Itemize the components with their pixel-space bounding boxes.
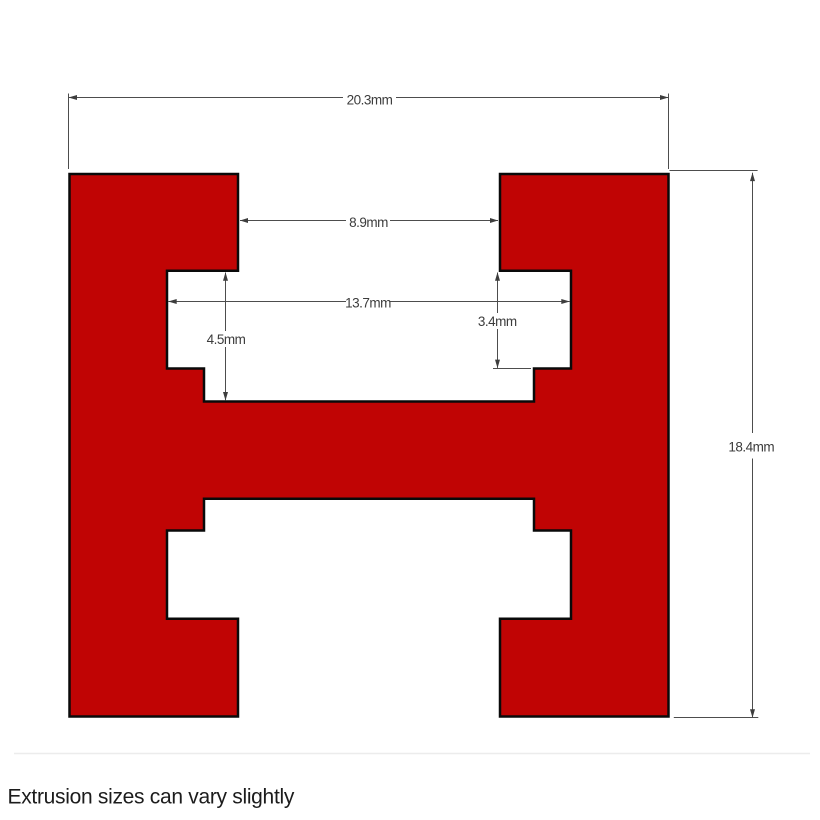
svg-text:3.4mm: 3.4mm [478,314,517,329]
svg-text:20.3mm: 20.3mm [347,93,393,108]
svg-text:13.7mm: 13.7mm [345,295,391,310]
svg-text:Extrusion sizes can vary sligh: Extrusion sizes can vary slightly [8,786,295,809]
svg-text:4.5mm: 4.5mm [207,332,246,347]
svg-text:18.4mm: 18.4mm [728,440,774,455]
svg-text:8.9mm: 8.9mm [349,215,388,230]
